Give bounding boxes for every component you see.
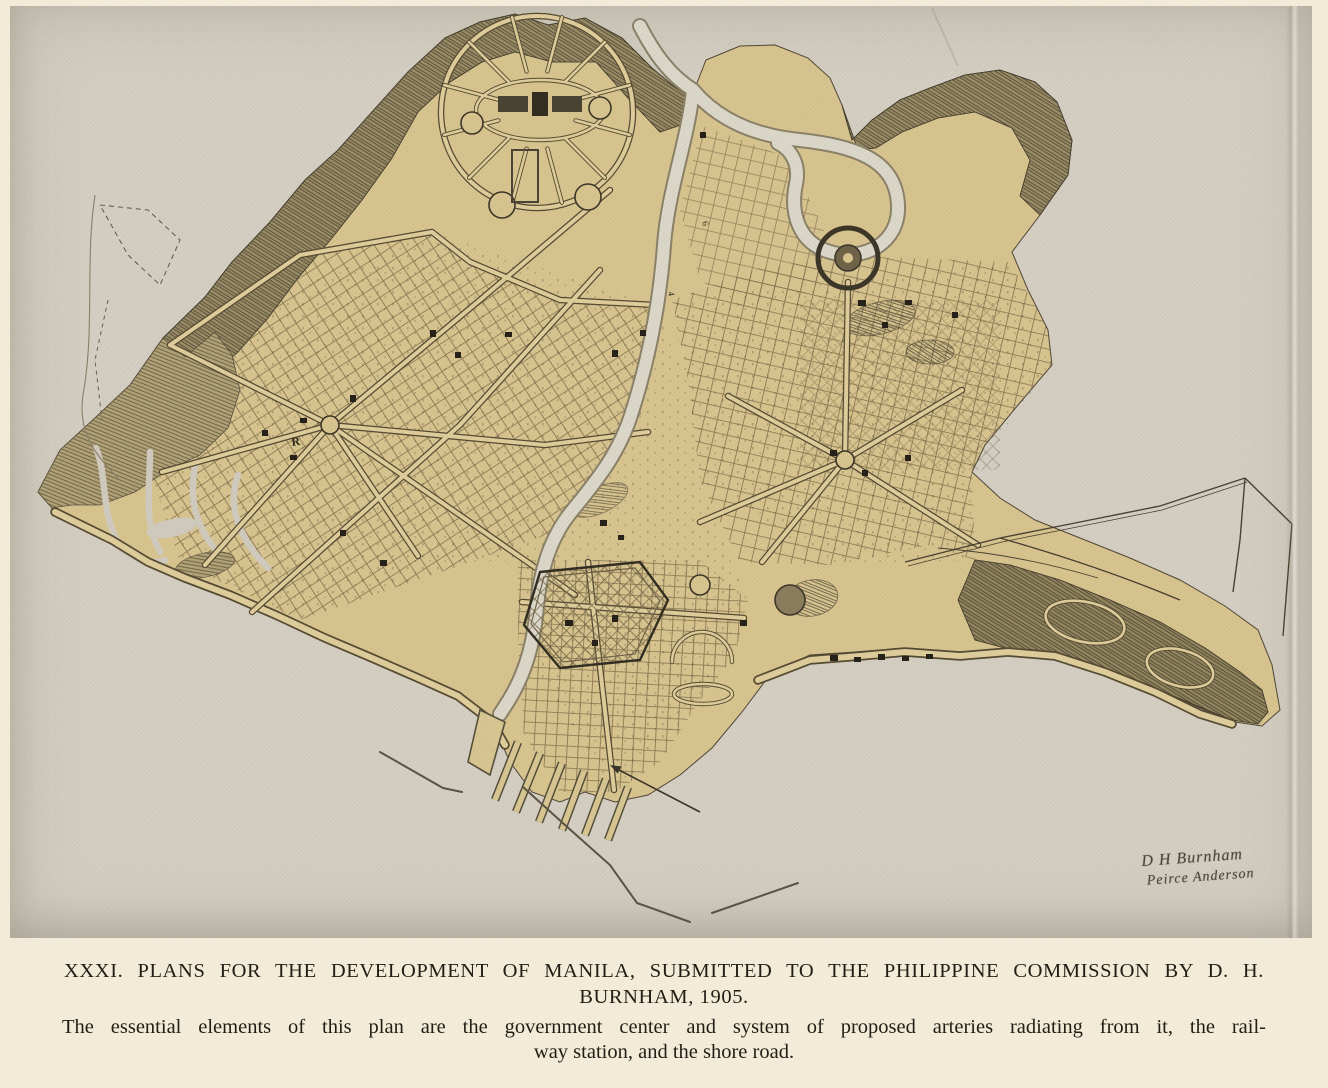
caption-title-line1: XXXI. PLANS FOR THE DEVELOPMENT OF MANIL… xyxy=(64,958,1264,984)
plate-caption: XXXI. PLANS FOR THE DEVELOPMENT OF MANIL… xyxy=(0,958,1328,1065)
main-dock xyxy=(468,710,505,775)
caption-title-line2: BURNHAM, 1905. xyxy=(64,984,1264,1010)
paper-fold xyxy=(932,8,958,66)
scanned-map-plate: R 4 6 D H Burnham Peirce Anderson xyxy=(10,6,1312,938)
manila-plan-map: R 4 6 xyxy=(10,6,1312,938)
book-page: { "caption": { "title_line1": "XXXI. PLA… xyxy=(0,0,1328,1088)
caption-body-line1: The essential elements of this plan are … xyxy=(62,1015,1266,1040)
caption-body-line2: way station, and the shore road. xyxy=(62,1040,1266,1065)
